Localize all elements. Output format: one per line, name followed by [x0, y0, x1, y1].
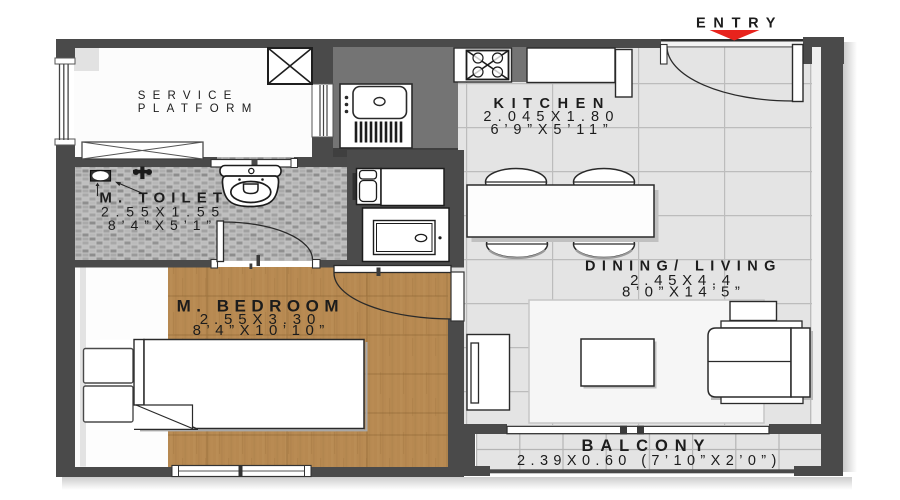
svg-text:8’4”X10’10”: 8’4”X10’10” — [193, 322, 330, 339]
svg-text:8’4”X5’1”: 8’4”X5’1” — [108, 217, 217, 233]
svg-text:ENTRY: ENTRY — [696, 16, 783, 32]
svg-text:8’0”X14’5”: 8’0”X14’5” — [622, 283, 745, 300]
svg-text:SERVICE: SERVICE — [138, 90, 239, 102]
svg-text:6’9”X5’11”: 6’9”X5’11” — [490, 122, 613, 138]
svg-text:PLATFORM: PLATFORM — [138, 103, 259, 115]
svg-text:2.39X0.60 (7’10”X2’0”): 2.39X0.60 (7’10”X2’0”) — [517, 453, 782, 469]
